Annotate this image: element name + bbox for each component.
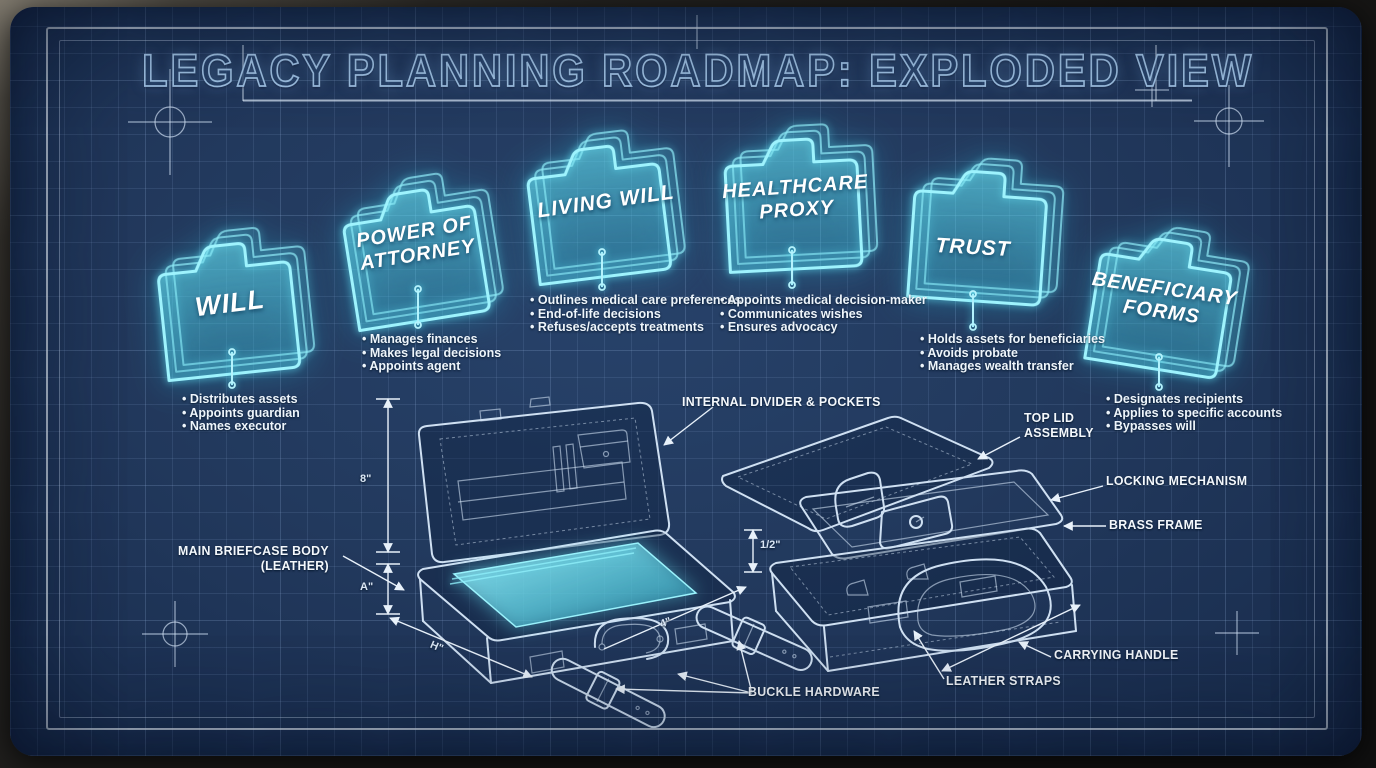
blueprint-sheet: LEGACY PLANNING ROADMAP: EXPLODED VIEW W… xyxy=(10,7,1362,756)
vignette-overlay xyxy=(10,7,1362,756)
